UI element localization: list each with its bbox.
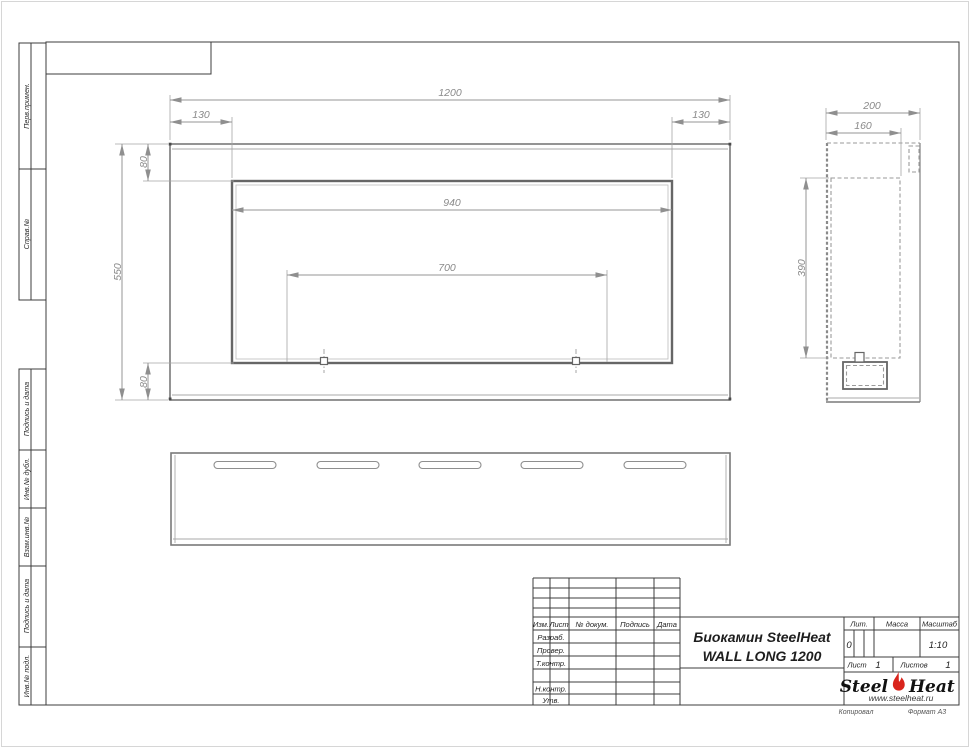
lit-label: Лит.: [849, 620, 868, 629]
dim-flange-bottom-label: 80: [138, 376, 150, 388]
dim-flange-top-label: 80: [138, 156, 150, 168]
product-title-line2: WALL LONG 1200: [703, 648, 822, 664]
row-nkontr: Н.контр.: [535, 685, 567, 694]
col-data: Дата: [656, 620, 677, 629]
flame-icon: [893, 672, 905, 691]
dim-inner-depth: 160: [826, 120, 901, 176]
dim-margin-right-label: 130: [692, 109, 710, 121]
vent-slot: [419, 462, 481, 469]
bottom-view: [171, 453, 730, 545]
stamp-label: Справ.№: [22, 218, 31, 249]
stamp-label: Инв.№ дубл.: [22, 458, 31, 500]
dim-overall-height-label: 550: [112, 263, 124, 281]
side-inner-cavity: [831, 178, 900, 358]
stamp-label: Подпись и дата: [22, 579, 31, 633]
copied-label: Копировал: [839, 709, 874, 716]
dim-overall-height: 550: [112, 144, 168, 400]
stamp-podpis-data-1: Подпись и дата: [19, 369, 46, 450]
left-stamp-column: Перв.примен. Справ.№ Подпись и дата Инв.…: [19, 43, 46, 705]
vent-slot: [521, 462, 583, 469]
col-list: Лист: [548, 620, 568, 629]
vent-slot: [214, 462, 276, 469]
row-razrab: Разраб.: [537, 633, 564, 642]
side-view: 200 160 390: [796, 100, 920, 402]
stamp-inv-podl: Инв.№ подл.: [19, 647, 46, 705]
row-prover: Провер.: [537, 646, 565, 655]
dim-overall-width: 1200: [170, 87, 730, 140]
format-label: Формат А3: [908, 709, 946, 716]
drawing-sheet: Перв.примен. Справ.№ Подпись и дата Инв.…: [0, 0, 970, 749]
col-podpis: Подпись: [620, 620, 650, 629]
dim-burner-span-label: 700: [438, 262, 456, 274]
logo-url: www.steelheat.ru: [869, 693, 934, 703]
stamp-perv-primen: Перв.примен.: [19, 43, 46, 169]
sheet-value: 1: [875, 660, 880, 671]
row-utv: Утв.: [541, 696, 559, 705]
massa-label: Масса: [886, 620, 908, 629]
dim-overall-width-label: 1200: [438, 87, 462, 99]
sheets-value: 1: [945, 660, 950, 671]
lit-value: 0: [846, 640, 852, 651]
dim-opening-height-label: 390: [796, 259, 808, 277]
row-tkontr: Т.контр.: [536, 659, 566, 668]
sheet-label: Лист: [846, 661, 866, 670]
title-block: Изм. Лист № докум. Подпись Дата Разраб. …: [533, 578, 959, 705]
dim-inner-depth-label: 160: [854, 120, 872, 132]
col-izm: Изм.: [533, 620, 549, 629]
col-doc: № докум.: [575, 620, 608, 629]
stamp-label: Подпись и дата: [22, 382, 31, 436]
side-bracket: [909, 146, 919, 172]
dim-depth: 200: [826, 100, 920, 140]
stamp-inv-dubl: Инв.№ дубл.: [19, 450, 46, 508]
stamp-label: Взам.инв.№: [22, 517, 31, 558]
dim-depth-label: 200: [862, 100, 881, 112]
stamp-vzam-inv: Взам.инв.№: [19, 508, 46, 566]
stamp-label: Перв.примен.: [22, 83, 31, 129]
drawing-canvas: Перв.примен. Справ.№ Подпись и дата Инв.…: [0, 0, 970, 749]
vent-slot: [624, 462, 686, 469]
sheets-label: Листов: [899, 661, 927, 670]
vent-slot: [317, 462, 379, 469]
front-view: 1200 130 130 940 700: [112, 87, 731, 400]
steelheat-logo: Steel Heat www.steelheat.ru: [840, 672, 955, 703]
stamp-label: Инв.№ подл.: [22, 655, 31, 698]
dim-margin-left-label: 130: [192, 109, 210, 121]
stamp-podpis-data-2: Подпись и дата: [19, 566, 46, 647]
product-title-line1: Биокамин SteelHeat: [693, 629, 831, 645]
scale-value: 1:10: [929, 640, 948, 651]
dim-opening-width-label: 940: [443, 197, 461, 209]
scale-label: Масштаб: [922, 620, 958, 629]
stamp-sprav-no: Справ.№: [19, 169, 46, 300]
dim-opening-height: 390: [796, 178, 829, 358]
